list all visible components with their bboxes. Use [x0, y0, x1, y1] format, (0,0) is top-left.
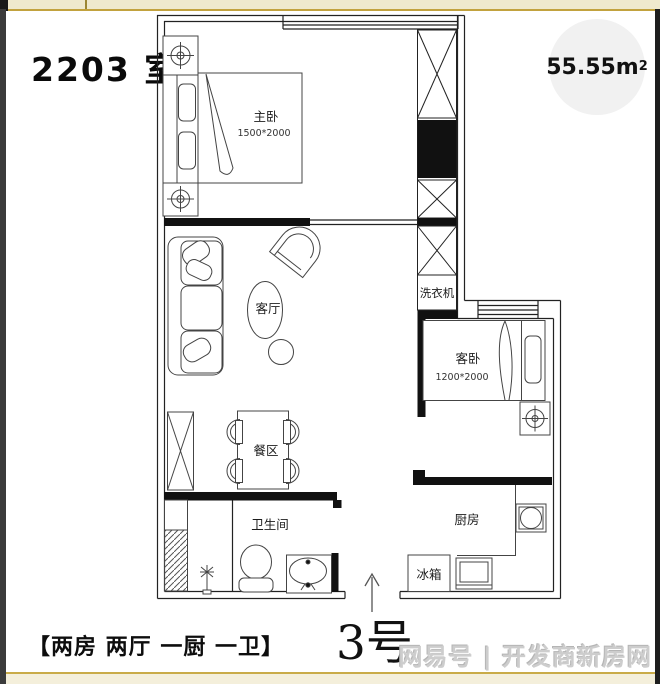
dining-area-label: 餐区 — [253, 443, 278, 458]
wall-kitchen-notch — [413, 470, 425, 478]
dining-area — [168, 411, 300, 490]
fridge — [456, 558, 492, 589]
pillow — [179, 132, 196, 169]
watermark: 网易号 | 开发商新房网 — [399, 637, 652, 672]
fridge-label: 冰箱 — [416, 567, 441, 582]
washing-machine-label: 洗衣机 — [420, 286, 455, 300]
hatched-wall — [165, 530, 188, 591]
bath-cabinet — [165, 500, 188, 530]
plant — [200, 565, 214, 594]
side-stool — [269, 340, 294, 365]
wall-washer-bottom — [418, 310, 458, 319]
wall-master-living — [164, 218, 310, 226]
guest-bedroom-dimensions: 1200*2000 — [435, 372, 488, 383]
layout-summary: 【两房 两厅 一厨 一卫】 — [28, 629, 284, 661]
master-bedroom-dimensions: 1500*2000 — [237, 128, 290, 139]
pillow — [179, 84, 196, 121]
floorplan-svg: 洗衣机 主卧 1500*2000 — [0, 0, 660, 684]
wall-bathroom-tab — [333, 500, 342, 508]
kitchen-label: 厨房 — [454, 512, 479, 527]
dining-chair — [284, 420, 300, 445]
bathroom — [165, 500, 332, 594]
living-room — [168, 219, 329, 375]
pillow — [525, 336, 541, 383]
dining-chair — [284, 459, 300, 484]
armchair — [270, 219, 329, 278]
floorplan-page: 2203 室 55.55m2 — [0, 0, 660, 684]
wardrobe-column — [418, 30, 457, 310]
guest-bedroom-label: 客卧 — [455, 351, 480, 366]
wall-bathroom-right — [332, 553, 339, 592]
left-frame-strip — [0, 9, 6, 684]
toilet-base — [239, 578, 273, 592]
right-frame-strip — [655, 9, 660, 684]
toilet — [241, 545, 272, 579]
dining-chair — [227, 420, 243, 445]
master-bedroom-label: 主卧 — [253, 109, 278, 124]
wall-bathroom-top — [164, 492, 337, 501]
sofa-cushion — [181, 286, 222, 330]
master-bedroom — [163, 36, 302, 216]
living-room-label: 客厅 — [255, 301, 280, 316]
wardrobe-solid-block — [418, 120, 457, 178]
wardrobe-solid-band — [418, 218, 457, 226]
dining-chair — [227, 459, 243, 484]
wall-kitchen-top — [413, 477, 552, 485]
bathroom-label: 卫生间 — [251, 517, 289, 532]
